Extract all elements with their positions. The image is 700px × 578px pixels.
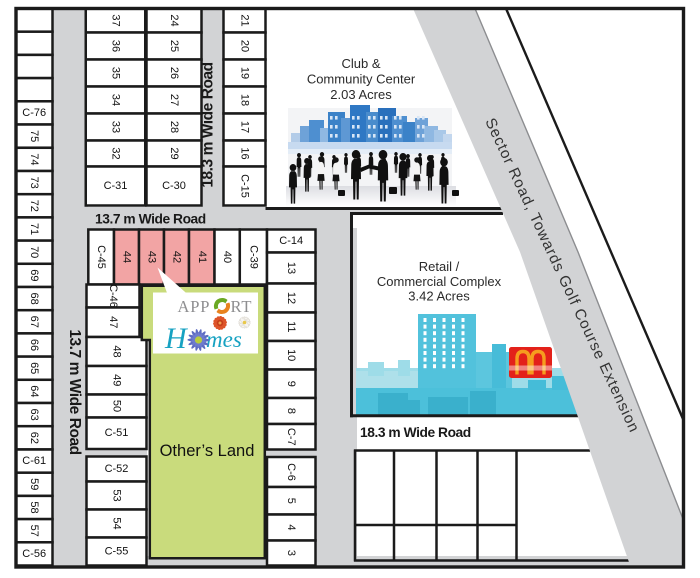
svg-text:C-31: C-31 bbox=[104, 180, 128, 192]
svg-text:RT: RT bbox=[231, 297, 253, 316]
svg-text:4: 4 bbox=[285, 524, 297, 530]
svg-text:H: H bbox=[164, 322, 189, 355]
svg-text:C-52: C-52 bbox=[105, 463, 129, 475]
svg-text:13: 13 bbox=[285, 262, 297, 274]
svg-text:74: 74 bbox=[28, 153, 40, 165]
svg-text:C-46: C-46 bbox=[107, 284, 119, 308]
svg-text:17: 17 bbox=[239, 121, 251, 133]
svg-text:C-45: C-45 bbox=[95, 245, 107, 269]
svg-text:8: 8 bbox=[285, 408, 297, 414]
svg-text:Community Center: Community Center bbox=[307, 72, 416, 87]
svg-text:13.7 m Wide Road: 13.7 m Wide Road bbox=[66, 329, 83, 454]
svg-text:Commercial Complex: Commercial Complex bbox=[377, 274, 502, 289]
svg-text:53: 53 bbox=[111, 489, 123, 501]
svg-text:C-61: C-61 bbox=[22, 455, 46, 467]
svg-text:33: 33 bbox=[110, 121, 122, 133]
svg-text:64: 64 bbox=[28, 385, 40, 397]
svg-text:Retail /: Retail / bbox=[419, 259, 460, 274]
svg-text:APP: APP bbox=[178, 297, 211, 316]
svg-text:54: 54 bbox=[111, 517, 123, 529]
svg-text:Other’s Land: Other’s Land bbox=[160, 442, 255, 460]
svg-text:75: 75 bbox=[28, 130, 40, 142]
svg-text:73: 73 bbox=[28, 176, 40, 188]
svg-text:28: 28 bbox=[168, 121, 180, 133]
svg-text:C-6: C-6 bbox=[285, 463, 297, 481]
svg-text:59: 59 bbox=[28, 478, 40, 490]
svg-text:18.3 m Wide Road: 18.3 m Wide Road bbox=[200, 62, 217, 187]
svg-text:13.7 m Wide Road: 13.7 m Wide Road bbox=[95, 212, 206, 227]
svg-text:47: 47 bbox=[107, 316, 119, 328]
svg-text:18: 18 bbox=[239, 94, 251, 106]
svg-text:57: 57 bbox=[28, 525, 40, 537]
svg-text:9: 9 bbox=[285, 381, 297, 387]
svg-text:20: 20 bbox=[239, 40, 251, 52]
svg-text:43: 43 bbox=[146, 251, 158, 263]
svg-text:67: 67 bbox=[28, 316, 40, 328]
svg-text:32: 32 bbox=[110, 147, 122, 159]
svg-text:10: 10 bbox=[285, 349, 297, 361]
svg-text:66: 66 bbox=[28, 339, 40, 351]
svg-text:26: 26 bbox=[168, 67, 180, 79]
svg-text:3.42 Acres: 3.42 Acres bbox=[408, 289, 470, 304]
svg-text:62: 62 bbox=[28, 432, 40, 444]
svg-text:C-14: C-14 bbox=[279, 235, 303, 247]
svg-text:12: 12 bbox=[285, 292, 297, 304]
svg-text:37: 37 bbox=[110, 14, 122, 26]
svg-text:36: 36 bbox=[110, 40, 122, 52]
svg-text:Club &: Club & bbox=[341, 56, 380, 71]
svg-text:5: 5 bbox=[285, 498, 297, 504]
svg-text:24: 24 bbox=[168, 14, 180, 26]
svg-text:C-56: C-56 bbox=[22, 548, 46, 560]
svg-text:C-30: C-30 bbox=[162, 180, 186, 192]
svg-text:63: 63 bbox=[28, 408, 40, 420]
svg-text:70: 70 bbox=[28, 246, 40, 258]
svg-text:C-39: C-39 bbox=[247, 245, 259, 269]
svg-text:29: 29 bbox=[168, 147, 180, 159]
svg-text:42: 42 bbox=[171, 251, 183, 263]
svg-text:69: 69 bbox=[28, 269, 40, 281]
svg-text:3: 3 bbox=[285, 550, 297, 556]
svg-text:72: 72 bbox=[28, 200, 40, 212]
svg-text:21: 21 bbox=[239, 14, 251, 26]
svg-text:49: 49 bbox=[111, 374, 123, 386]
svg-text:40: 40 bbox=[221, 251, 233, 263]
svg-text:44: 44 bbox=[121, 251, 133, 263]
svg-text:11: 11 bbox=[285, 321, 297, 332]
svg-text:27: 27 bbox=[168, 94, 180, 106]
svg-text:mes: mes bbox=[206, 327, 242, 352]
svg-text:19: 19 bbox=[239, 67, 251, 79]
svg-text:C-76: C-76 bbox=[22, 107, 46, 119]
svg-text:41: 41 bbox=[196, 251, 208, 263]
svg-text:16: 16 bbox=[239, 147, 251, 159]
svg-text:71: 71 bbox=[28, 223, 40, 235]
svg-text:C-55: C-55 bbox=[105, 546, 129, 558]
svg-text:25: 25 bbox=[168, 40, 180, 52]
svg-text:C-15: C-15 bbox=[239, 174, 251, 198]
svg-text:C-7: C-7 bbox=[285, 428, 297, 446]
svg-text:58: 58 bbox=[28, 501, 40, 513]
svg-text:48: 48 bbox=[111, 345, 123, 357]
svg-text:65: 65 bbox=[28, 362, 40, 374]
svg-text:50: 50 bbox=[111, 400, 123, 412]
svg-text:68: 68 bbox=[28, 292, 40, 304]
svg-text:2.03 Acres: 2.03 Acres bbox=[330, 87, 392, 102]
svg-text:18.3 m Wide Road: 18.3 m Wide Road bbox=[360, 425, 471, 440]
svg-text:C-51: C-51 bbox=[105, 427, 129, 439]
svg-text:35: 35 bbox=[110, 67, 122, 79]
svg-text:34: 34 bbox=[110, 94, 122, 106]
